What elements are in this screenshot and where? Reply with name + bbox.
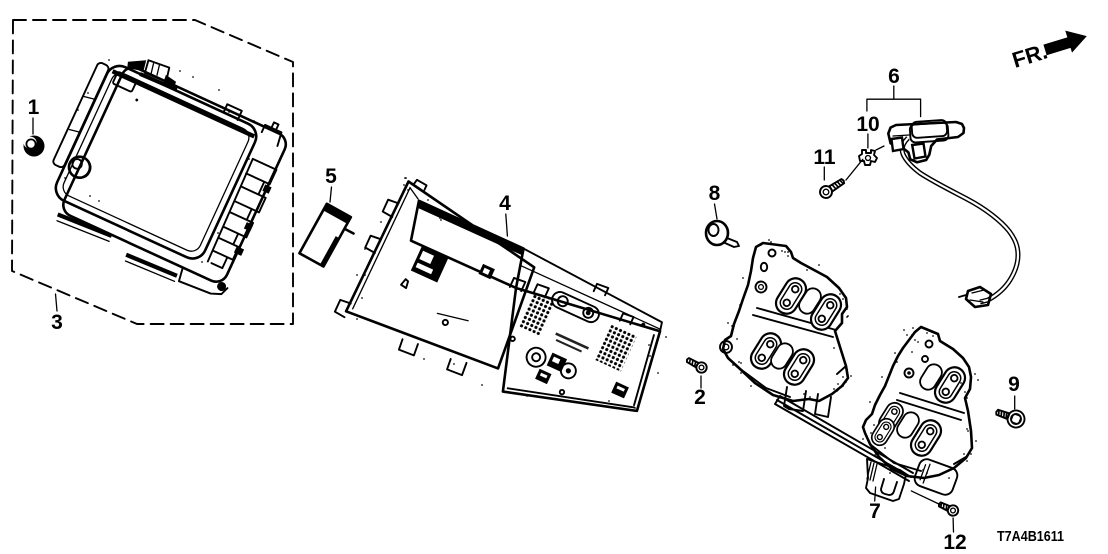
svg-text:10: 10 <box>856 113 879 136</box>
svg-text:T7A4B1611: T7A4B1611 <box>997 529 1064 545</box>
svg-text:6: 6 <box>888 65 900 88</box>
svg-text:3: 3 <box>51 311 63 334</box>
svg-text:5: 5 <box>325 165 337 188</box>
svg-text:9: 9 <box>1008 373 1020 396</box>
svg-text:1: 1 <box>28 96 40 119</box>
svg-text:11: 11 <box>813 146 836 169</box>
svg-text:2: 2 <box>694 386 706 409</box>
svg-text:7: 7 <box>869 500 881 523</box>
svg-text:8: 8 <box>709 182 721 205</box>
svg-text:12: 12 <box>943 531 966 554</box>
svg-text:4: 4 <box>499 192 511 215</box>
